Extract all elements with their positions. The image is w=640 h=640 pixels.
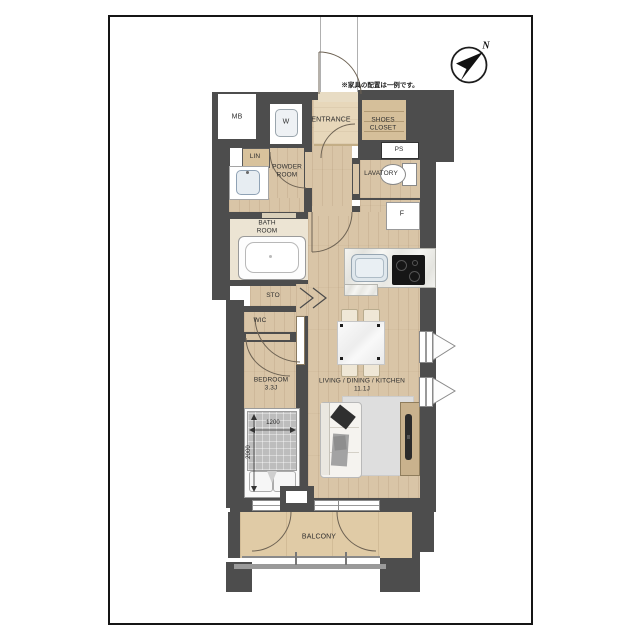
label-w: W (283, 117, 290, 126)
label-entrance: ENTRANCE (311, 115, 350, 124)
door-arc-lavatory (321, 124, 355, 158)
compass-icon (452, 48, 487, 83)
accordion-door-sto (300, 288, 326, 308)
label-sto: STO (266, 292, 280, 300)
label-bedroom: BEDROOM 3.3J (254, 377, 288, 394)
label-shoes-closet: SHOES CLOSET (370, 117, 397, 134)
label-mb: MB (232, 112, 243, 121)
floorplan-page: N ※家具の配置は一例です。 MB W ENTRANCE SHOES CLOSE… (0, 0, 640, 640)
window-swing-icon (433, 333, 455, 404)
label-balcony: BALCONY (302, 532, 336, 541)
label-bath-room: BATH ROOM (257, 220, 278, 237)
label-f: F (400, 209, 404, 218)
label-ldk: LIVING / DINING / KITCHEN 11.1J (319, 378, 405, 395)
label-bed-width: 1200 (266, 420, 280, 428)
label-powder-room: POWDER ROOM (272, 164, 302, 181)
door-arc-wic (246, 338, 290, 376)
door-arc-hall-ldk (312, 212, 352, 252)
door-arc-balcony-right (337, 512, 376, 551)
label-ps: PS (395, 146, 404, 154)
door-arc-balcony-left (252, 512, 291, 551)
furniture-note: ※家具の配置は一例です。 (341, 79, 418, 89)
label-wic: WIC (254, 317, 267, 325)
pillow-notch (267, 471, 277, 483)
label-lavatory: LAVATORY (364, 170, 398, 178)
label-lin: LIN (250, 153, 260, 161)
compass-north-label: N (482, 41, 489, 52)
plan-overlay (0, 0, 640, 640)
label-bed-length: 2000 (246, 445, 254, 459)
